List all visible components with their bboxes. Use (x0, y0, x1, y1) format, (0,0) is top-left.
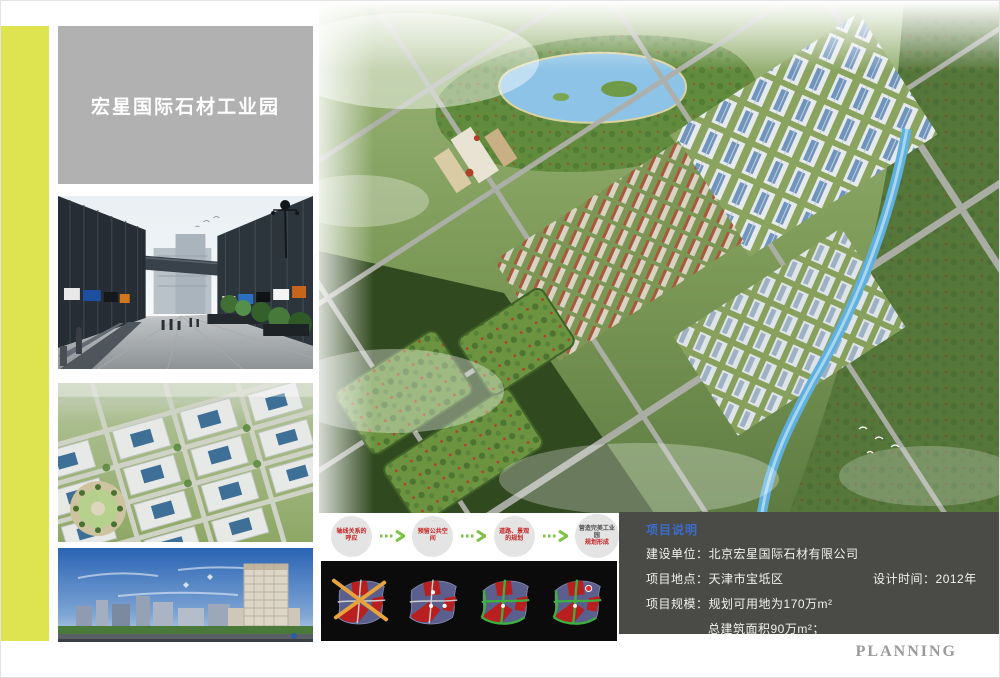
skyline-illustration (58, 548, 313, 642)
project-info-box: 项目说明 建设单位：北京宏星国际石材有限公司 项目地点：天津市宝坻区 设计时间：… (619, 512, 999, 634)
design-time-label: 设计时间： (873, 572, 936, 586)
flow-step-4-sublabel: 规划形成 (585, 540, 609, 547)
arrow-right-icon (460, 530, 486, 542)
arrow-right-icon (542, 530, 568, 542)
floor-area-value: 总建筑面积90万m²； (708, 622, 825, 636)
presentation-board: 宏星国际石材工业园 (0, 0, 1000, 678)
info-row-location: 项目地点：天津市宝坻区 设计时间：2012年 (646, 570, 989, 587)
concept-diagram-axes (330, 572, 392, 630)
project-info-heading: 项目说明 (646, 521, 989, 538)
design-time: 设计时间：2012年 (873, 570, 977, 587)
owner-value: 北京宏星国际石材有限公司 (709, 547, 859, 561)
industrial-park-aerial-rendering (58, 383, 313, 542)
page-title: 宏星国际石材工业园 (91, 92, 280, 119)
concept-flow-diagram: 轴线关系的呼应 预留公共空间 道路、景观的规划 营造 (331, 513, 619, 559)
flow-step-2-label: 预留公共空间 (415, 529, 450, 543)
planning-watermark: PLANNING (856, 643, 957, 661)
scale-value: 规划可用地为170万m² (709, 597, 833, 611)
street-view-rendering (58, 196, 313, 369)
title-box: 宏星国际石材工业园 (58, 26, 313, 184)
arrow-right-icon (379, 530, 405, 542)
design-time-value: 2012年 (936, 572, 977, 586)
flow-step-3-label: 道路、景观的规划 (497, 529, 532, 543)
skyline-rendering (58, 548, 313, 642)
masterplan-illustration (319, 1, 999, 513)
masterplan-rendering (319, 1, 999, 513)
location-label: 项目地点： (646, 572, 709, 586)
street-view-illustration (58, 196, 313, 369)
accent-strip (1, 26, 49, 641)
flow-step-4-label: 营造完美工业园 (578, 526, 616, 540)
info-row-owner: 建设单位：北京宏星国际石材有限公司 (646, 545, 989, 562)
location-value: 天津市宝坻区 (709, 572, 784, 586)
concept-diagram-nodes (402, 572, 464, 630)
concept-diagrams-panel (321, 561, 617, 641)
scale-label: 项目规模： (646, 597, 709, 611)
flow-step-1-label: 轴线关系的呼应 (334, 529, 369, 543)
info-row-scale: 项目规模：规划可用地为170万m² (646, 595, 989, 612)
flow-step-1: 轴线关系的呼应 (331, 516, 372, 557)
owner-label: 建设单位： (646, 547, 709, 561)
flow-step-4: 营造完美工业园 规划形成 (575, 514, 619, 558)
industrial-aerial-illustration (58, 383, 313, 542)
flow-step-2: 预留公共空间 (412, 516, 453, 557)
concept-diagram-green-roads (474, 572, 536, 630)
concept-diagram-final-plan (546, 572, 608, 630)
info-row-floor-area: 总建筑面积90万m²； (646, 620, 989, 637)
flow-step-3: 道路、景观的规划 (494, 516, 535, 557)
circular-plaza (70, 481, 126, 536)
